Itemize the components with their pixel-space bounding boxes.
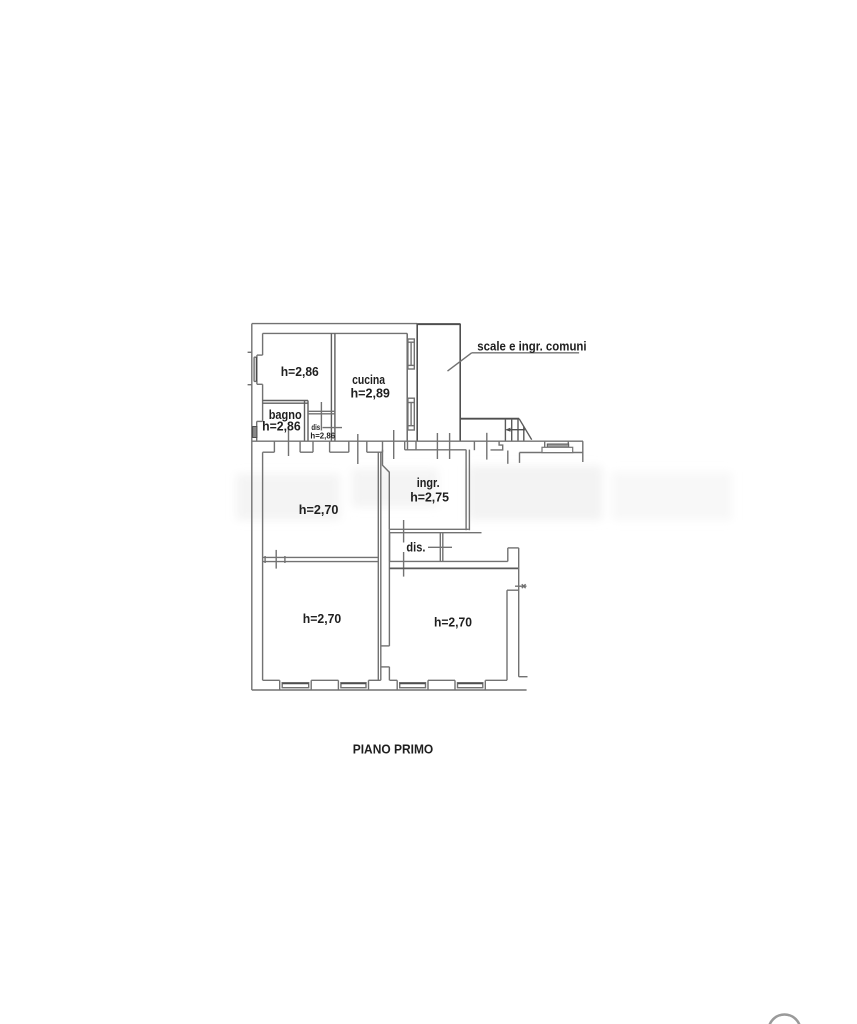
- svg-text:h=2,86: h=2,86: [281, 364, 319, 379]
- svg-text:ingr.: ingr.: [417, 475, 440, 490]
- svg-text:dis.: dis.: [406, 539, 425, 554]
- svg-text:h=2,70: h=2,70: [299, 502, 339, 517]
- svg-text:h=2,75: h=2,75: [410, 490, 449, 505]
- svg-text:scale e ingr. comuni: scale e ingr. comuni: [477, 339, 586, 354]
- svg-text:h=2,86: h=2,86: [262, 419, 301, 434]
- svg-text:h=2,89: h=2,89: [350, 386, 390, 401]
- svg-text:h=2,70: h=2,70: [303, 611, 342, 626]
- svg-text:h=2,70: h=2,70: [434, 614, 472, 629]
- svg-text:h=2,86: h=2,86: [310, 431, 335, 441]
- svg-text:PIANO PRIMO: PIANO PRIMO: [353, 742, 434, 757]
